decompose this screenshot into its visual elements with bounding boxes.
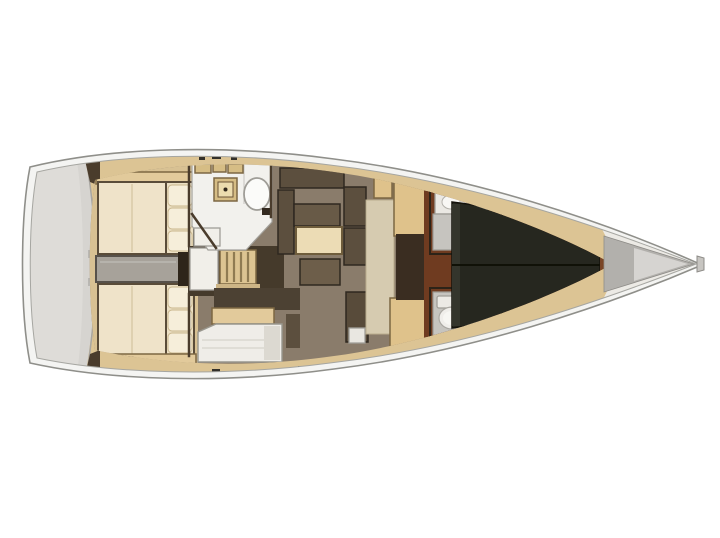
salon-ottoman (300, 259, 340, 285)
engine-compartment (96, 256, 180, 282)
salon-sofa-right-upper (344, 187, 366, 226)
yacht-floorplan (0, 0, 720, 538)
salon-bench-footrest (349, 328, 365, 343)
companionway-ladder (220, 250, 256, 284)
galley-sink (244, 178, 270, 210)
salon-sofa-right-lower (344, 228, 366, 265)
galley-stove-burner (224, 188, 228, 192)
salon-sofa-left (278, 190, 294, 254)
engine-access-box (190, 248, 218, 290)
nav-seat (286, 314, 300, 348)
salon-table (296, 227, 342, 254)
salon-sofa-seat (294, 204, 340, 226)
nav-shelf (212, 308, 274, 324)
nav-seat-back (214, 288, 300, 310)
nav-desk-side (264, 326, 280, 360)
bow-fitting (697, 256, 704, 272)
